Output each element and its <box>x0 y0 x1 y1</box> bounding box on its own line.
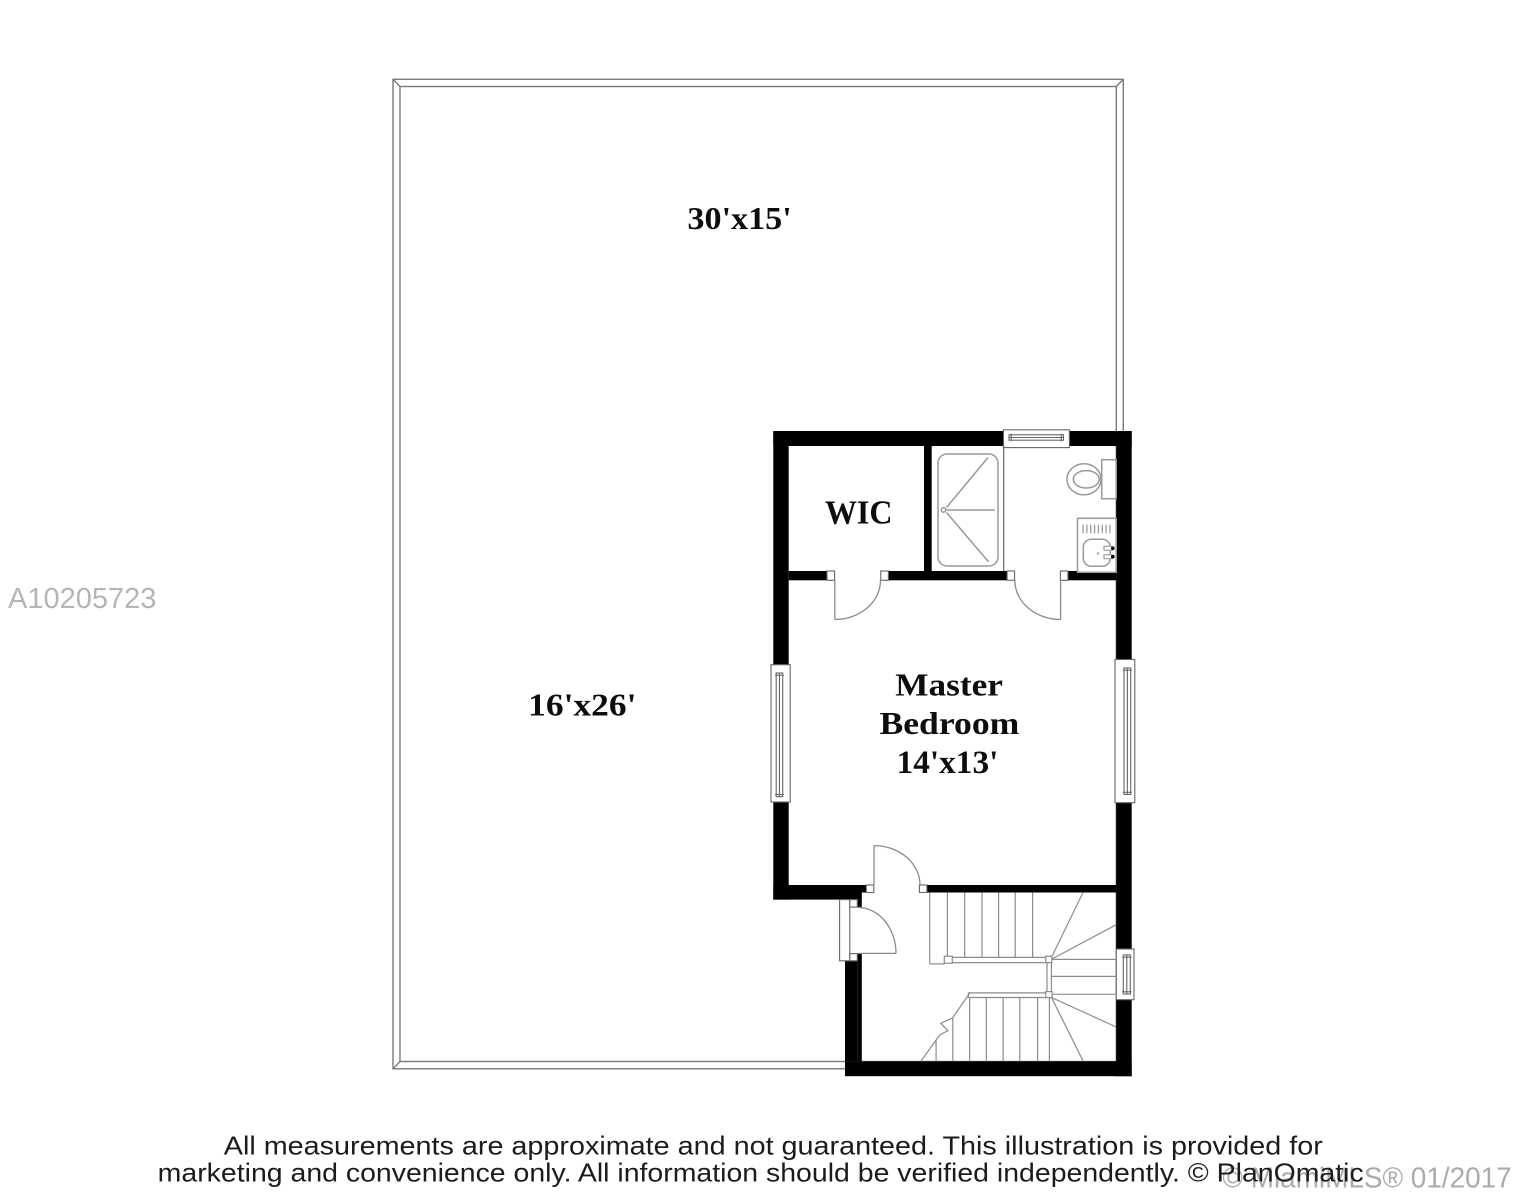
svg-text:Master: Master <box>895 668 1003 703</box>
svg-text:All measurements are approxima: All measurements are approximate and not… <box>224 1130 1323 1160</box>
svg-text:Bedroom: Bedroom <box>880 706 1020 741</box>
svg-text:WIC: WIC <box>825 494 893 531</box>
svg-text:A10205723: A10205723 <box>8 583 156 615</box>
svg-text:30'x15': 30'x15' <box>687 201 791 236</box>
svg-text:16'x26': 16'x26' <box>528 687 636 722</box>
svg-text:marketing and convenience only: marketing and convenience only. All info… <box>158 1158 1364 1188</box>
svg-text:14'x13': 14'x13' <box>897 745 999 781</box>
